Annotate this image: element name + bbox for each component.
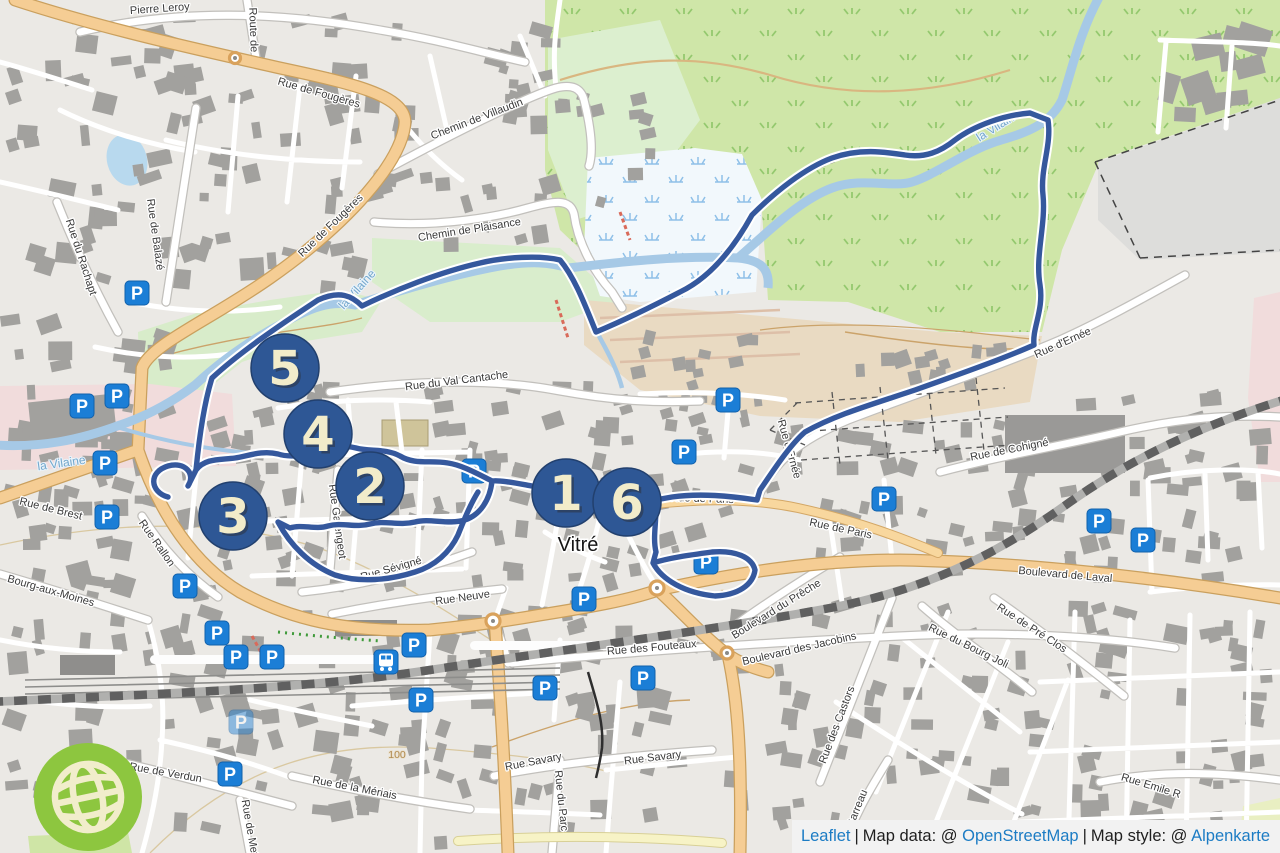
parking-icon: P	[173, 574, 197, 598]
svg-text:5: 5	[268, 341, 301, 397]
parking-icon: P	[716, 388, 740, 412]
route-marker-4[interactable]: 44	[284, 400, 352, 468]
map-canvas[interactable]: P P P P P P P P P P P P P P P P P P P P …	[0, 0, 1280, 853]
route-marker-1[interactable]: 11	[532, 459, 600, 527]
map-data-prefix: Map data: @	[863, 827, 958, 845]
separator: |	[1083, 827, 1087, 845]
city-label-vitre: Vitré	[558, 534, 599, 556]
svg-text:P: P	[76, 397, 88, 417]
svg-text:3: 3	[216, 489, 249, 545]
leaflet-link[interactable]: Leaflet	[801, 827, 851, 845]
svg-text:P: P	[111, 387, 123, 407]
svg-text:P: P	[101, 508, 113, 528]
parking-icon: P	[125, 281, 149, 305]
parking-icon: P	[260, 645, 284, 669]
svg-text:P: P	[878, 490, 890, 510]
street-label: Route de	[246, 7, 260, 52]
svg-text:P: P	[179, 577, 191, 597]
svg-text:P: P	[637, 669, 649, 689]
route-marker-6[interactable]: 66	[593, 468, 661, 536]
parking-icon: P	[872, 487, 896, 511]
parking-icon: P	[631, 666, 655, 690]
map-container[interactable]: P P P P P P P P P P P P P P P P P P P P …	[0, 0, 1280, 853]
map-style-prefix: Map style: @	[1091, 827, 1188, 845]
attribution-bar: Leaflet|Map data: @ OpenStreetMap|Map st…	[792, 820, 1280, 853]
contour-label: 100	[388, 749, 406, 761]
svg-text:P: P	[408, 636, 420, 656]
route-marker-2[interactable]: 22	[336, 452, 404, 520]
parking-icon: P	[205, 621, 229, 645]
separator: |	[855, 827, 859, 845]
svg-text:1: 1	[549, 466, 582, 522]
parking-icon: P	[572, 587, 596, 611]
parking-icon: P	[402, 633, 426, 657]
svg-text:P: P	[131, 284, 143, 304]
svg-text:P: P	[578, 590, 590, 610]
svg-text:P: P	[539, 679, 551, 699]
svg-text:P: P	[1093, 512, 1105, 532]
parking-icon: P	[93, 451, 117, 475]
alpenkarte-link[interactable]: Alpenkarte	[1191, 827, 1270, 845]
svg-text:P: P	[224, 765, 236, 785]
svg-text:2: 2	[353, 459, 386, 515]
parking-icon: P	[218, 762, 242, 786]
svg-text:4: 4	[301, 407, 334, 463]
svg-text:P: P	[230, 648, 242, 668]
svg-text:P: P	[722, 391, 734, 411]
svg-text:P: P	[266, 648, 278, 668]
svg-text:P: P	[678, 443, 690, 463]
svg-text:P: P	[235, 713, 247, 733]
parking-icon: P	[1087, 509, 1111, 533]
bus-icon	[374, 650, 398, 674]
route-marker-3[interactable]: 33	[199, 482, 267, 550]
parking-icon-faded: P	[229, 710, 253, 734]
route-marker-5[interactable]: 55	[251, 334, 319, 402]
svg-text:P: P	[211, 624, 223, 644]
parking-icon: P	[105, 384, 129, 408]
parking-icon: P	[533, 676, 557, 700]
parking-icon: P	[672, 440, 696, 464]
openstreetmap-link[interactable]: OpenStreetMap	[962, 827, 1078, 845]
parking-icon: P	[409, 688, 433, 712]
svg-text:P: P	[415, 691, 427, 711]
parking-icon: P	[70, 394, 94, 418]
svg-text:P: P	[1137, 531, 1149, 551]
parking-icon: P	[1131, 528, 1155, 552]
svg-text:P: P	[99, 454, 111, 474]
svg-text:6: 6	[610, 475, 643, 531]
parking-icon: P	[224, 645, 248, 669]
parking-icon: P	[95, 505, 119, 529]
